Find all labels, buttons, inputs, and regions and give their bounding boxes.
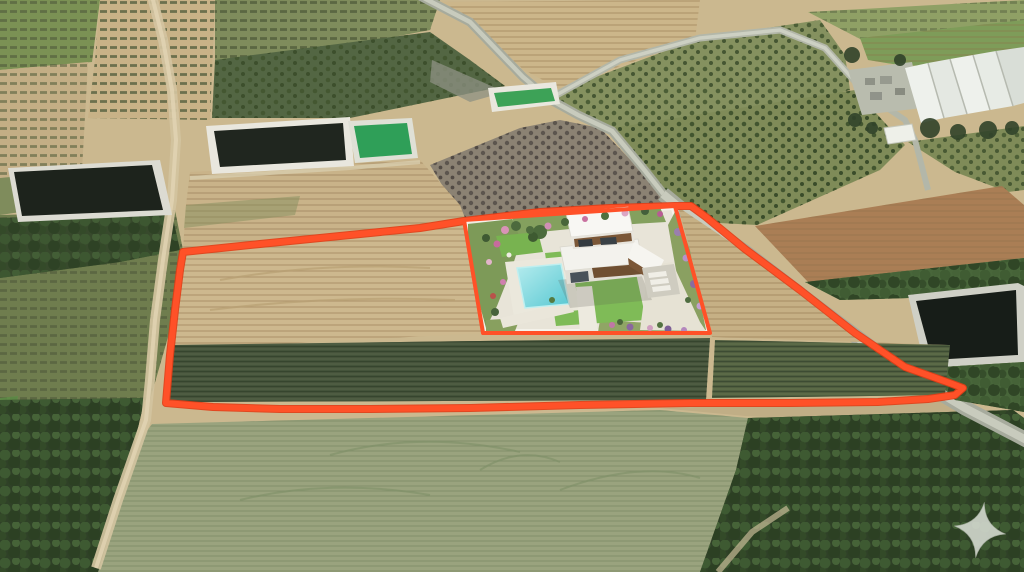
green-pond — [354, 123, 412, 158]
aerial-photo — [0, 0, 1024, 572]
aerial-property-view — [0, 0, 1024, 572]
glazing-lower — [570, 271, 589, 283]
villa-render — [464, 206, 710, 333]
pond-top-left — [14, 165, 163, 216]
white-shed — [884, 124, 916, 144]
